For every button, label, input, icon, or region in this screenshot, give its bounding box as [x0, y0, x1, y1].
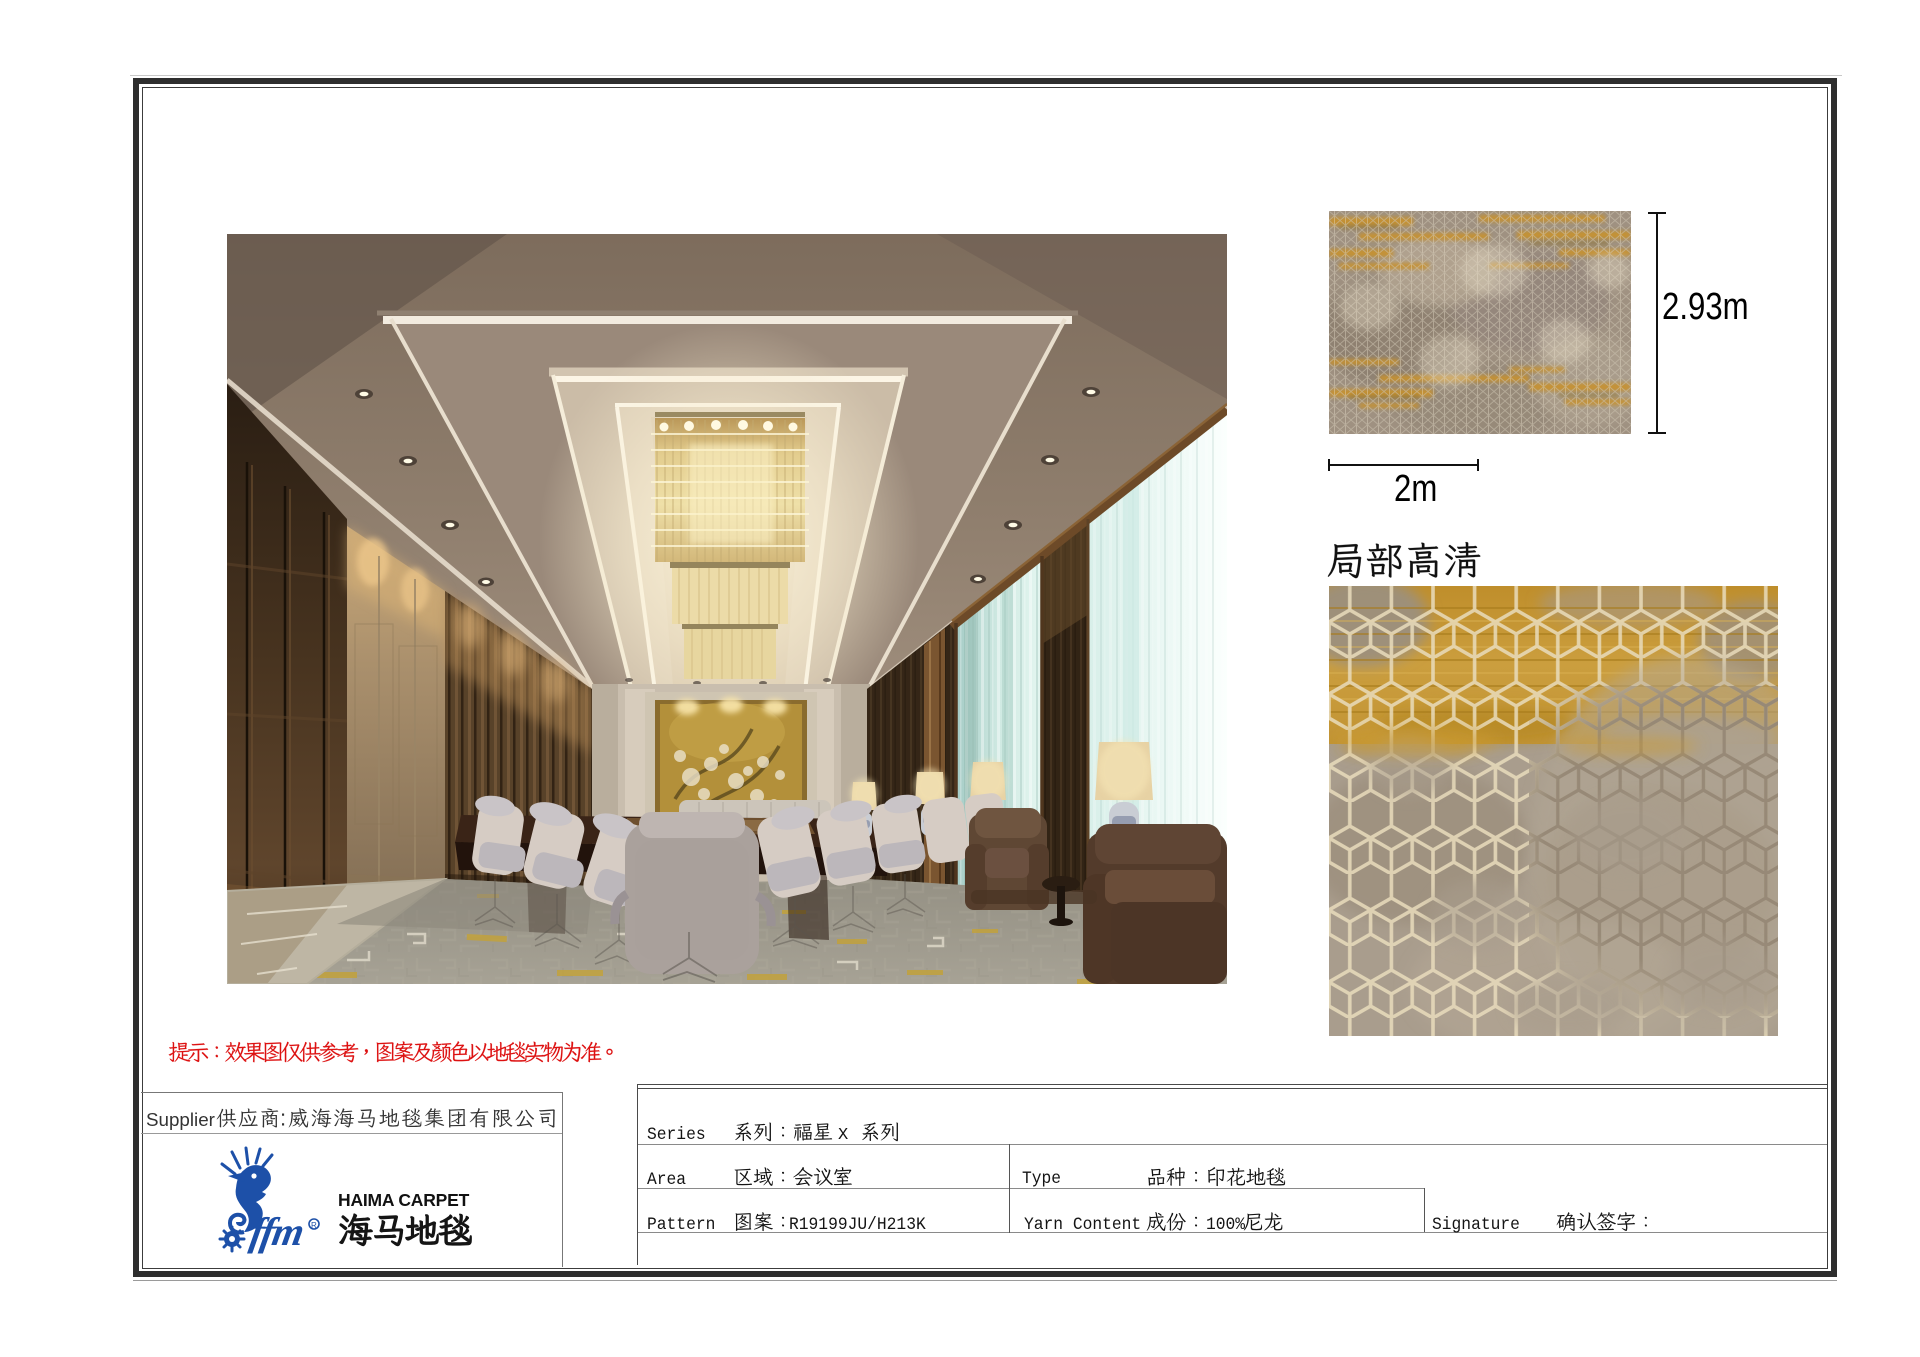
svg-text::: : — [280, 1106, 286, 1131]
svg-text:X: X — [838, 1126, 848, 1145]
